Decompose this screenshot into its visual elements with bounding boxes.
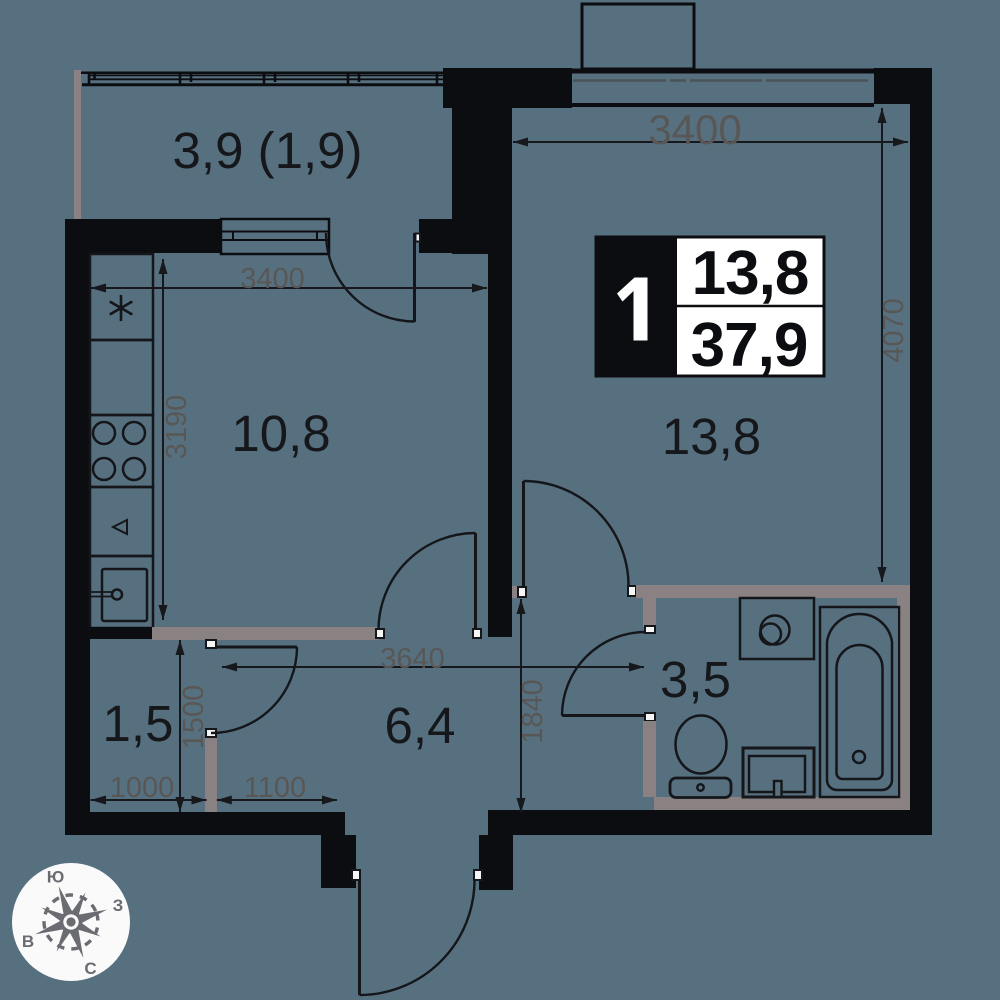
svg-text:3400: 3400 — [240, 263, 305, 295]
svg-text:3640: 3640 — [380, 643, 445, 675]
svg-text:1100: 1100 — [244, 772, 306, 804]
svg-text:Ю: Ю — [47, 868, 65, 887]
svg-text:13,8: 13,8 — [692, 239, 809, 308]
svg-text:3400: 3400 — [648, 106, 741, 153]
svg-text:В: В — [22, 932, 34, 951]
svg-text:10,8: 10,8 — [231, 405, 330, 462]
svg-text:З: З — [113, 896, 124, 915]
svg-text:3190: 3190 — [161, 395, 193, 460]
svg-text:1840: 1840 — [517, 679, 549, 744]
svg-text:С: С — [84, 959, 96, 978]
svg-text:4070: 4070 — [878, 298, 910, 363]
svg-text:3,5: 3,5 — [660, 651, 731, 708]
svg-text:37,9: 37,9 — [691, 311, 808, 380]
svg-text:1500: 1500 — [178, 685, 210, 750]
svg-text:13,8: 13,8 — [662, 408, 761, 465]
svg-text:3,9 (1,9): 3,9 (1,9) — [173, 122, 363, 179]
svg-text:1,5: 1,5 — [103, 695, 174, 752]
svg-text:6,4: 6,4 — [385, 697, 456, 754]
svg-text:1000: 1000 — [110, 772, 175, 804]
